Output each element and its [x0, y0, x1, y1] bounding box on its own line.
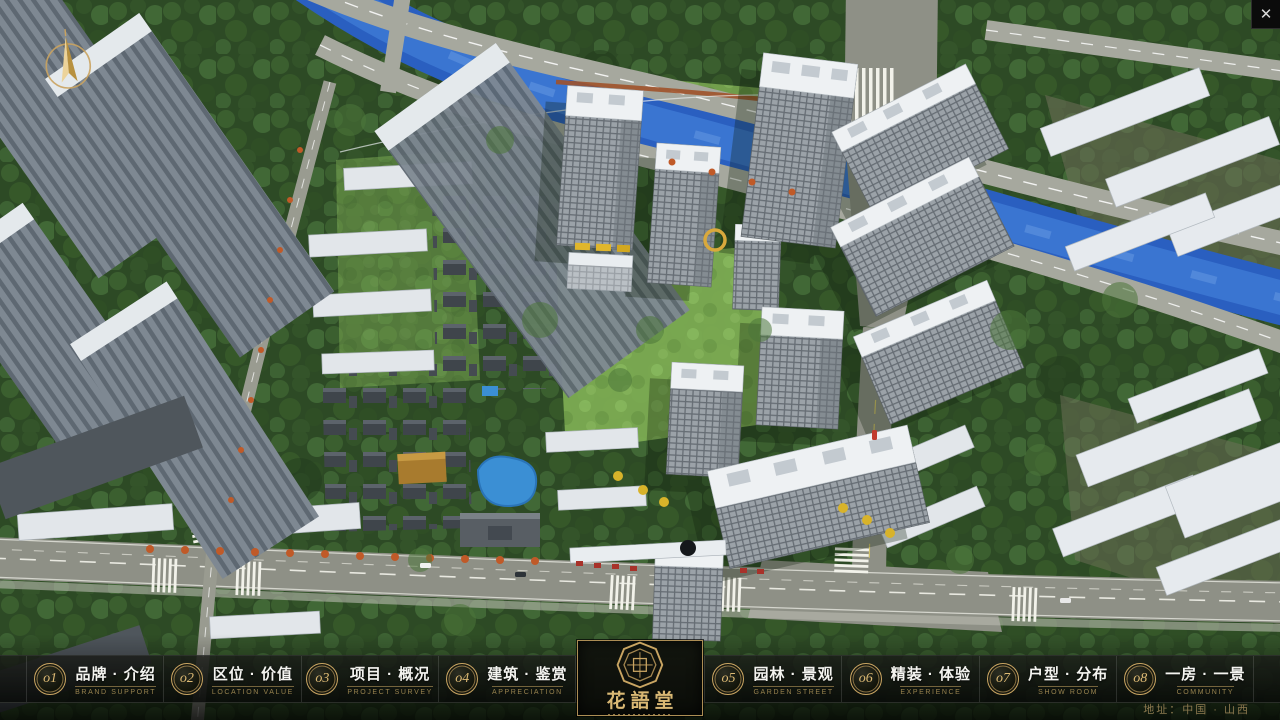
- project-name: 花語堂: [601, 692, 678, 711]
- nav-label-en: GARDEN STREET: [753, 686, 833, 696]
- nav-label-zh: 户型 · 分布: [1028, 663, 1108, 684]
- nav-number-badge: o4: [446, 663, 478, 695]
- nav-label-en: BRAND SUPPORT: [75, 686, 156, 696]
- presentation-window: ✕ o1 品牌 · 介绍BRAND SUPPORT o2 区位 · 价值LOCA…: [0, 0, 1280, 720]
- nav-label-en: LOCATION VALUE: [212, 686, 294, 696]
- nav-number-badge: o8: [1124, 663, 1156, 695]
- nav-label-zh: 精装 · 体验: [891, 663, 971, 684]
- address-text: 地址：中国 · 山西: [1143, 701, 1250, 717]
- nav-label-zh: 区位 · 价值: [213, 663, 293, 684]
- nav-number-badge: o6: [850, 663, 882, 695]
- nav-item-interior-experience[interactable]: o6 精装 · 体验EXPERIENCE: [841, 656, 978, 702]
- nav-label-en: APPRECIATION: [492, 686, 563, 696]
- nav-number-badge: o5: [712, 663, 744, 695]
- compass-icon: [36, 28, 100, 98]
- nav-item-project-overview[interactable]: o3 项目 · 概况PROJECT SURVEY: [301, 656, 438, 702]
- nav-label-en: SHOW ROOM: [1038, 686, 1098, 696]
- nav-item-landscape[interactable]: o5 园林 · 景观GARDEN STREET: [704, 656, 841, 702]
- nav-label-en: COMMUNITY: [1177, 686, 1235, 696]
- nav-number-badge: o2: [171, 663, 203, 695]
- seal-emblem-icon: [616, 641, 664, 689]
- nav-item-architecture[interactable]: o4 建筑 · 鉴赏APPRECIATION: [438, 656, 575, 702]
- nav-number-badge: o3: [306, 663, 338, 695]
- nav-label-zh: 项目 · 概况: [350, 663, 430, 684]
- nav-label-en: PROJECT SURVEY: [347, 686, 433, 696]
- nav-label-zh: 一房 · 一景: [1165, 663, 1245, 684]
- close-button[interactable]: ✕: [1251, 0, 1280, 29]
- logo-subtitle-text: [608, 714, 672, 715]
- nav-item-location-value[interactable]: o2 区位 · 价值LOCATION VALUE: [163, 656, 300, 702]
- nav-label-zh: 品牌 · 介绍: [75, 663, 155, 684]
- nav-label-en: EXPERIENCE: [900, 686, 961, 696]
- nav-item-floorplan-distribution[interactable]: o7 户型 · 分布SHOW ROOM: [979, 656, 1116, 702]
- nav-group-left: o1 品牌 · 介绍BRAND SUPPORT o2 区位 · 价值LOCATI…: [26, 656, 576, 702]
- nav-label-zh: 园林 · 景观: [753, 663, 833, 684]
- nav-item-brand-intro[interactable]: o1 品牌 · 介绍BRAND SUPPORT: [26, 656, 163, 702]
- nav-group-right: o5 园林 · 景观GARDEN STREET o6 精装 · 体验EXPERI…: [704, 656, 1254, 702]
- nav-label-zh: 建筑 · 鉴赏: [487, 663, 567, 684]
- nav-item-one-room-one-view[interactable]: o8 一房 · 一景COMMUNITY: [1116, 656, 1253, 702]
- project-logo[interactable]: 花語堂: [577, 640, 703, 716]
- nav-number-badge: o7: [987, 663, 1019, 695]
- masterplan-viewport[interactable]: [0, 0, 1280, 720]
- nav-number-badge: o1: [34, 663, 66, 695]
